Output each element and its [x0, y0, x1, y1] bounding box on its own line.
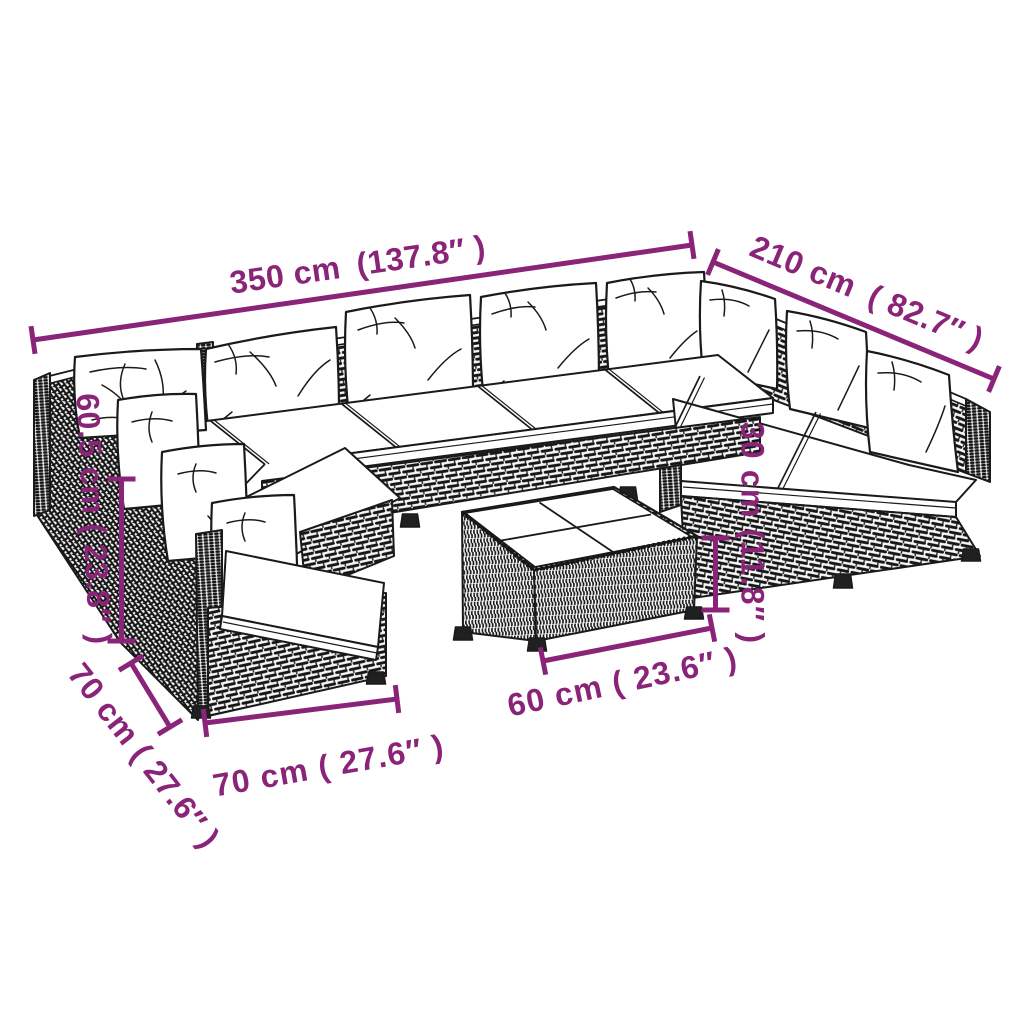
svg-text:30 cm (11.8″ ): 30 cm (11.8″ ) — [735, 422, 771, 644]
